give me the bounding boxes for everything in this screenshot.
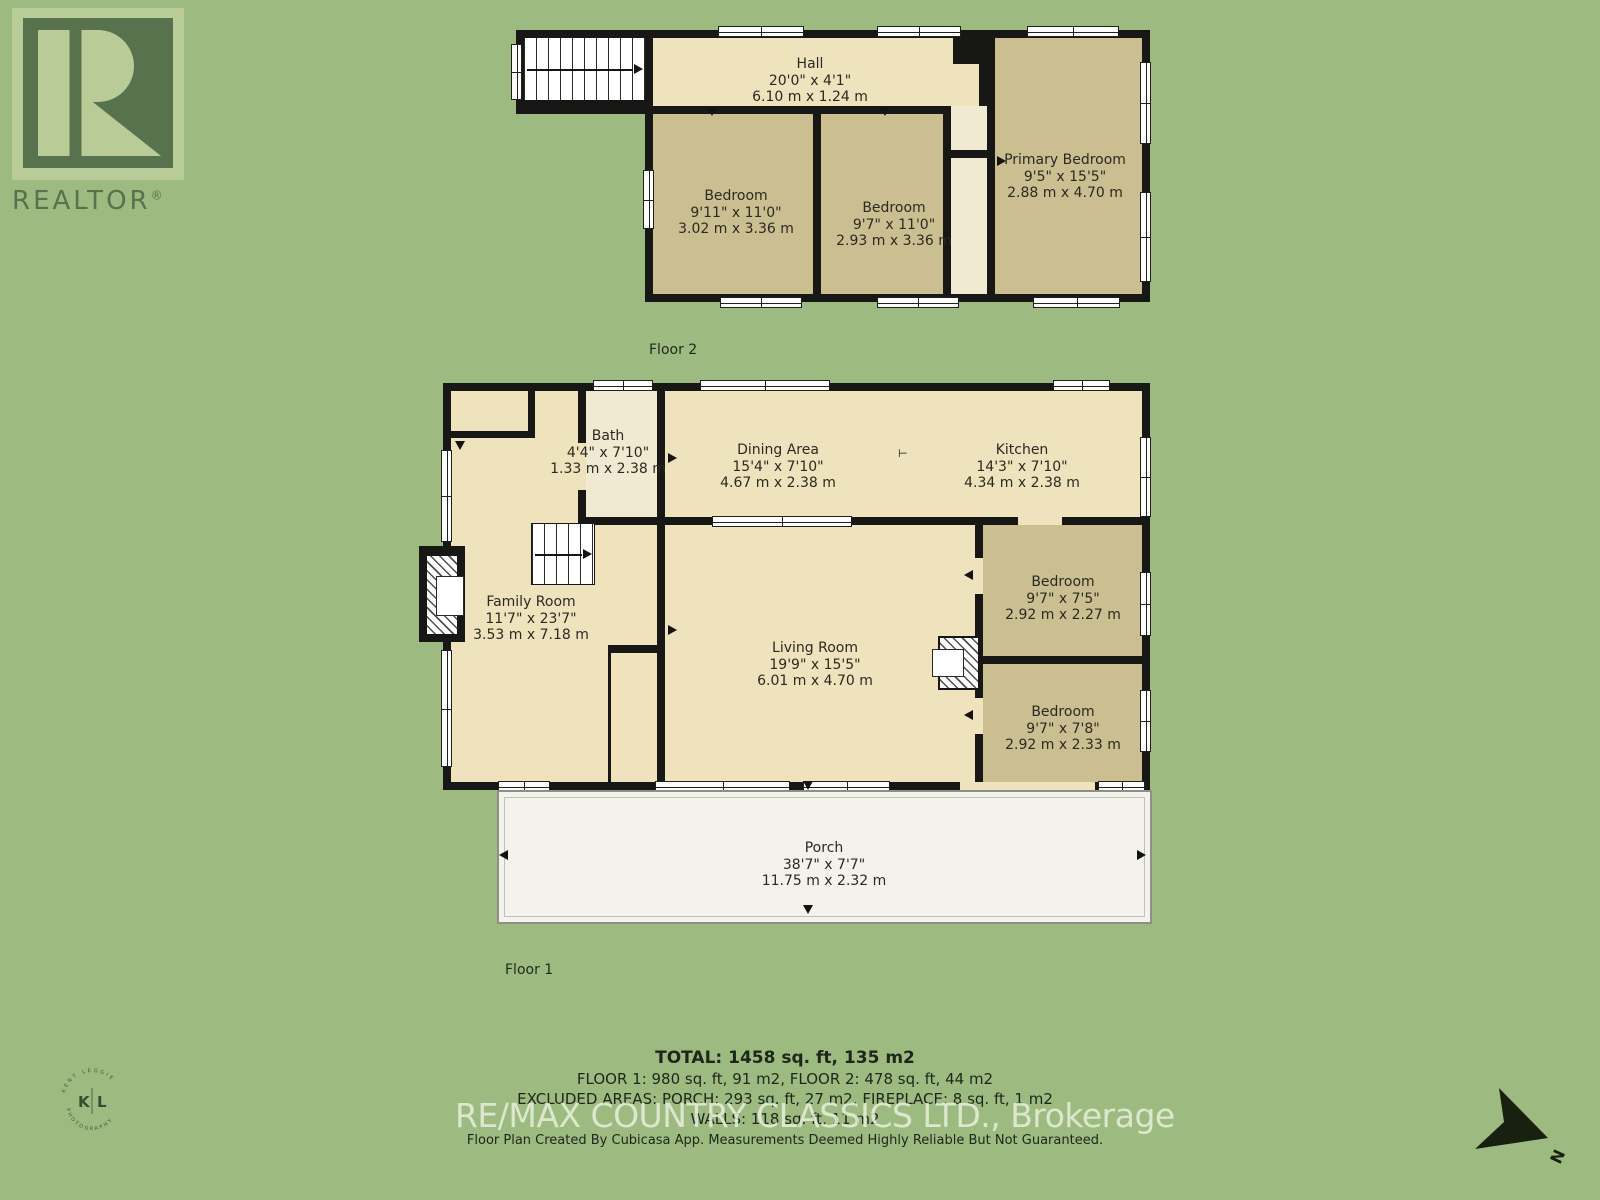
door-marker (880, 107, 890, 116)
room-label-primary-bedroom: Primary Bedroom 9'5" x 15'5" 2.88 m x 4.… (955, 152, 1175, 202)
window (1027, 26, 1119, 37)
badge-initial-l: L (97, 1093, 107, 1111)
brokerage-watermark: RE/MAX COUNTRY CLASSICS LTD., Brokerage (455, 1096, 1155, 1135)
realtor-r-icon (23, 18, 173, 168)
fireplace-firebox (932, 649, 964, 677)
door-opening (960, 782, 1095, 790)
total-area-text: TOTAL: 1458 sq. ft, 135 m2 (390, 1048, 1180, 1068)
floor2-label: Floor 2 (649, 342, 697, 358)
door-marker (455, 441, 465, 450)
badge-arc-bottom-text: PHOTOGRAPHY (64, 1108, 114, 1132)
realtor-logo: REALTOR® (12, 8, 184, 216)
north-label: N (1546, 1146, 1569, 1166)
door-hinge-marker: ⊢ (898, 447, 908, 460)
wall-segment (608, 653, 611, 782)
wall-segment (608, 645, 665, 653)
badge-arc-top-text: KENT LEGGIE (61, 1068, 116, 1094)
door-marker (803, 905, 813, 914)
room-label-kitchen: Kitchen 14'3" x 7'10" 4.34 m x 2.38 m (912, 442, 1132, 492)
room-label-hall: Hall 20'0" x 4'1" 6.10 m x 1.24 m (700, 56, 920, 106)
room-label-dining-area: Dining Area 15'4" x 7'10" 4.67 m x 2.38 … (668, 442, 888, 492)
floor-areas-text: FLOOR 1: 980 sq. ft, 91 m2, FLOOR 2: 478… (390, 1070, 1180, 1088)
window (700, 380, 830, 391)
window (877, 26, 961, 37)
window (1140, 192, 1151, 282)
window (593, 380, 653, 391)
registered-mark: ® (151, 188, 163, 202)
badge-initial-k: K (78, 1093, 91, 1111)
staircase-floor1 (531, 523, 595, 585)
realtor-logo-square (12, 8, 184, 180)
room-label-bedroom-f1-upper: Bedroom 9'7" x 7'5" 2.92 m x 2.27 m (953, 574, 1173, 624)
stair-arrow-icon (634, 64, 643, 74)
window (511, 44, 522, 100)
room-label-porch: Porch 38'7" x 7'7" 11.75 m x 2.32 m (714, 840, 934, 890)
window (1140, 62, 1151, 144)
wall-segment (578, 517, 1150, 525)
room-label-living-room: Living Room 19'9" x 15'5" 6.01 m x 4.70 … (705, 640, 925, 690)
wall-segment (657, 645, 665, 782)
window (1033, 297, 1120, 308)
door-opening (1018, 517, 1062, 525)
realtor-wordmark: REALTOR® (12, 186, 184, 216)
floorplan-page: { "branding": { "realtor_word": "REALTOR… (0, 0, 1600, 1200)
pass-through-window (712, 516, 852, 527)
floor1-label: Floor 1 (505, 962, 553, 978)
door-marker (1137, 850, 1146, 860)
window (877, 297, 959, 308)
north-arrow-icon: N (1455, 1078, 1570, 1173)
door-marker (668, 625, 677, 635)
svg-text:PHOTOGRAPHY: PHOTOGRAPHY (64, 1108, 114, 1132)
window (1140, 437, 1151, 517)
stair-direction-line (527, 69, 633, 71)
stair-arrow-icon (583, 549, 592, 559)
wall-segment (657, 478, 665, 517)
svg-text:KENT LEGGIE: KENT LEGGIE (61, 1068, 116, 1094)
door-marker (707, 107, 717, 116)
window (720, 297, 802, 308)
door-marker (803, 781, 813, 790)
window (441, 450, 452, 542)
staircase-floor2 (524, 38, 645, 100)
room-label-bedroom-f1-lower: Bedroom 9'7" x 7'8" 2.92 m x 2.33 m (953, 704, 1173, 754)
wall-segment (983, 656, 1142, 664)
realtor-r-glyph (23, 18, 173, 168)
room-label-bedroom-f2-mid: Bedroom 9'7" x 11'0" 2.93 m x 3.36 m (784, 200, 1004, 250)
window (1053, 380, 1110, 391)
wall-segment (657, 525, 665, 587)
room-label-family-room: Family Room 11'7" x 23'7" 3.53 m x 7.18 … (421, 594, 641, 644)
window (441, 650, 452, 767)
window (718, 26, 804, 37)
stair-direction-line (535, 554, 582, 556)
door-marker (499, 850, 508, 860)
disclaimer-text: Floor Plan Created By Cubicasa App. Meas… (390, 1133, 1180, 1148)
compass: N (1455, 1078, 1570, 1177)
kl-badge-icon: KENT LEGGIE PHOTOGRAPHY K L (50, 1058, 134, 1142)
photographer-badge: KENT LEGGIE PHOTOGRAPHY K L (50, 1058, 134, 1146)
